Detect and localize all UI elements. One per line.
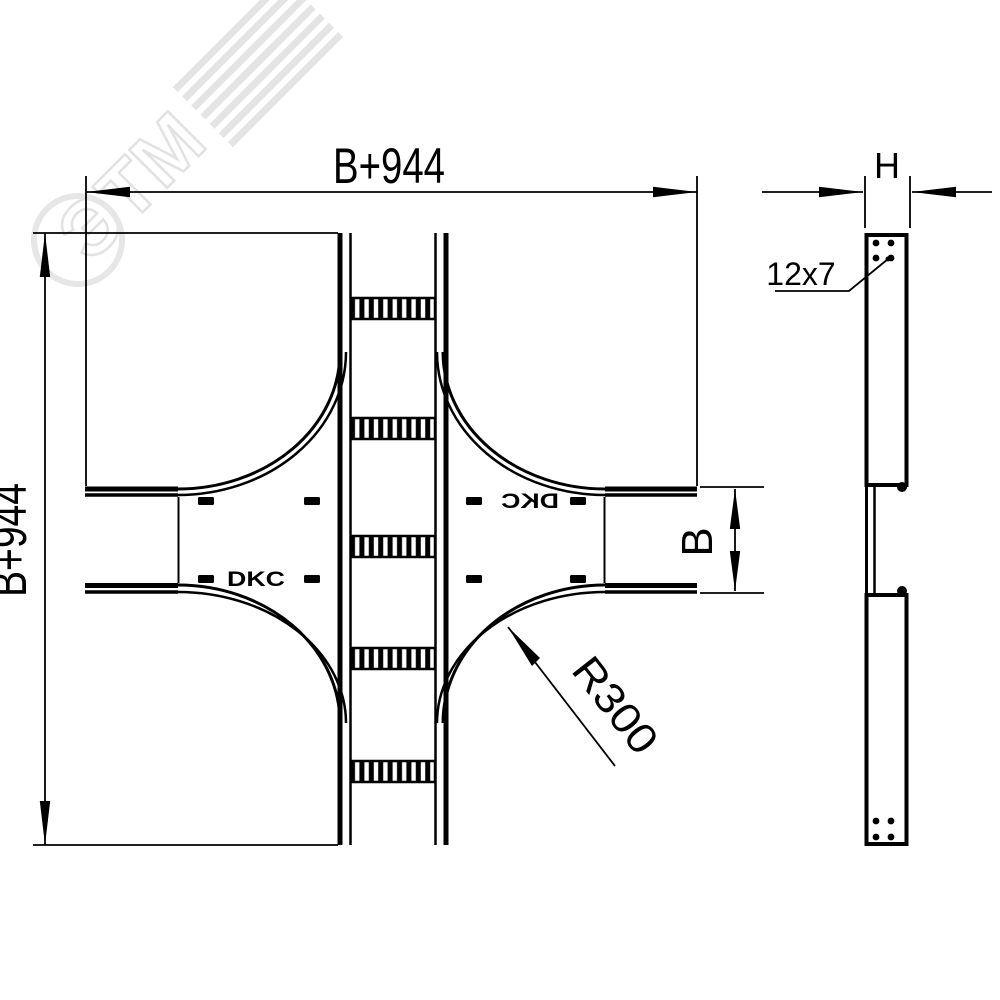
brand-logo-right-mirrored: DKC — [501, 490, 559, 513]
brand-logo-left: DKC — [227, 568, 285, 591]
slot — [304, 497, 320, 505]
hole — [888, 240, 895, 247]
dim-left-height-label: B+944 — [0, 483, 37, 597]
leader-dot-icon — [886, 257, 891, 262]
slot — [570, 497, 586, 505]
dim-tray-width-label: B — [673, 527, 722, 556]
technical-drawing: ЭТМ — [0, 0, 1000, 1000]
slot — [570, 575, 586, 583]
hole — [873, 818, 880, 825]
slot — [304, 575, 320, 583]
slot — [466, 575, 482, 583]
slot-size-label: 12x7 — [766, 256, 835, 292]
dim-top-width-label: B+944 — [333, 138, 445, 194]
rivet-top-icon — [897, 482, 907, 492]
side-profile-bottom — [867, 595, 907, 844]
svg-text:DKC: DKC — [501, 490, 559, 513]
slot — [198, 575, 214, 583]
rung — [351, 648, 435, 669]
hole — [888, 834, 895, 841]
drawing-canvas: ЭТМ — [0, 0, 1000, 1000]
rivet-bottom-icon — [897, 586, 907, 596]
dim-side-thickness-label: H — [874, 145, 900, 186]
hole — [873, 834, 880, 841]
slot — [466, 497, 482, 505]
hole — [888, 818, 895, 825]
rung — [351, 761, 435, 782]
hole — [873, 255, 880, 262]
slot — [198, 497, 214, 505]
hole — [873, 240, 880, 247]
rung — [351, 298, 435, 319]
rung — [351, 418, 435, 439]
rung — [351, 536, 435, 557]
